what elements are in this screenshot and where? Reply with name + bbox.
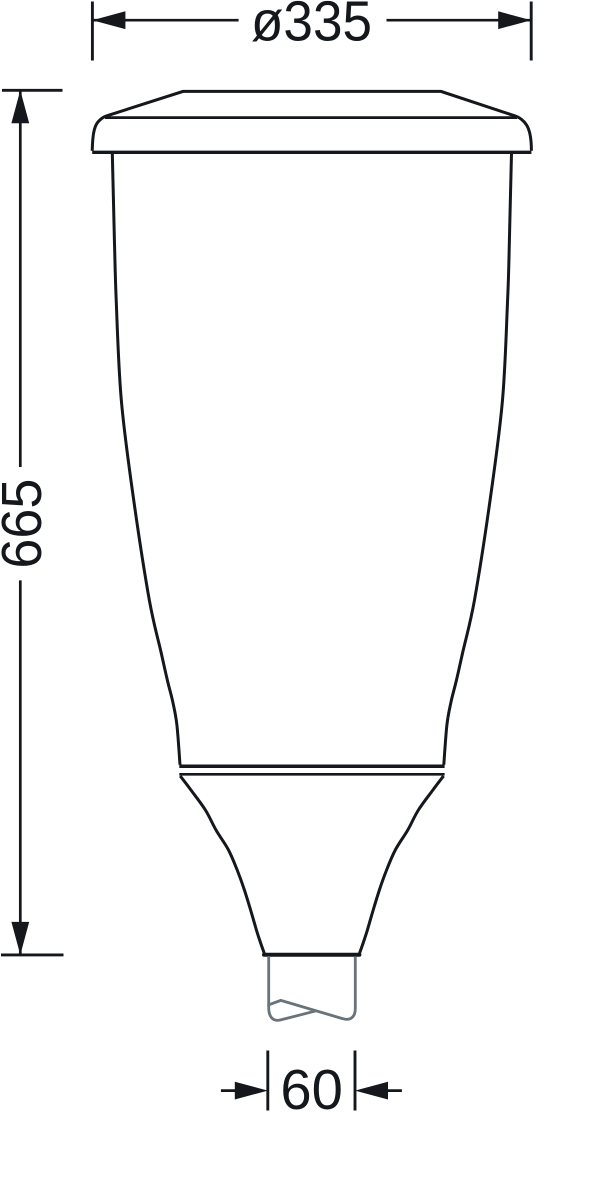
svg-text:60: 60 [280,1058,343,1122]
svg-text:665: 665 [0,479,54,569]
svg-text:ø335: ø335 [251,0,372,54]
